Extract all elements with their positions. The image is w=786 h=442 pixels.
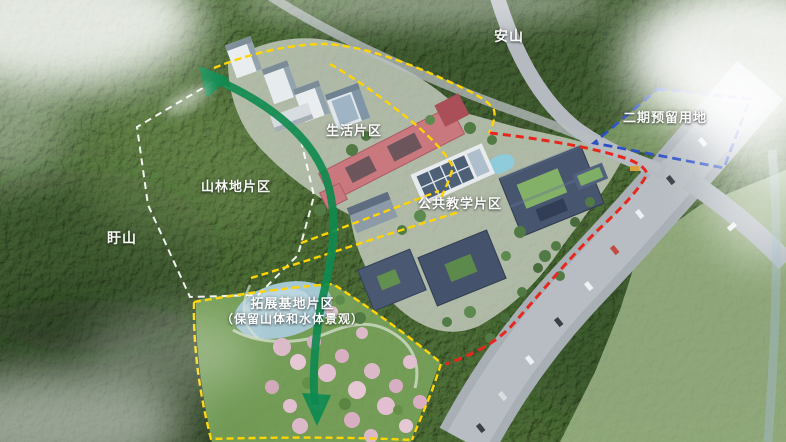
label-public-teaching-area: 公共教学片区: [418, 196, 502, 212]
label-phase2-reserved: 二期预留用地: [623, 110, 707, 126]
label-living-area: 生活片区: [326, 123, 382, 139]
label-xushan-mountain: 盱山: [107, 230, 137, 248]
label-expansion-base-title: 拓展基地片区: [250, 296, 334, 311]
label-expansion-base-note: （保留山体和水体景观）: [190, 312, 395, 327]
label-expansion-base-area: 拓展基地片区 （保留山体和水体景观）: [190, 296, 395, 327]
aerial-rendering-canvas: [0, 0, 786, 442]
label-mountain-forest-area: 山林地片区: [201, 179, 271, 195]
label-anshan-mountain: 安山: [494, 28, 524, 46]
campus-master-plan-rendering: 安山 二期预留用地 生活片区 山林地片区 盱山 公共教学片区 拓展基地片区 （保…: [0, 0, 786, 442]
